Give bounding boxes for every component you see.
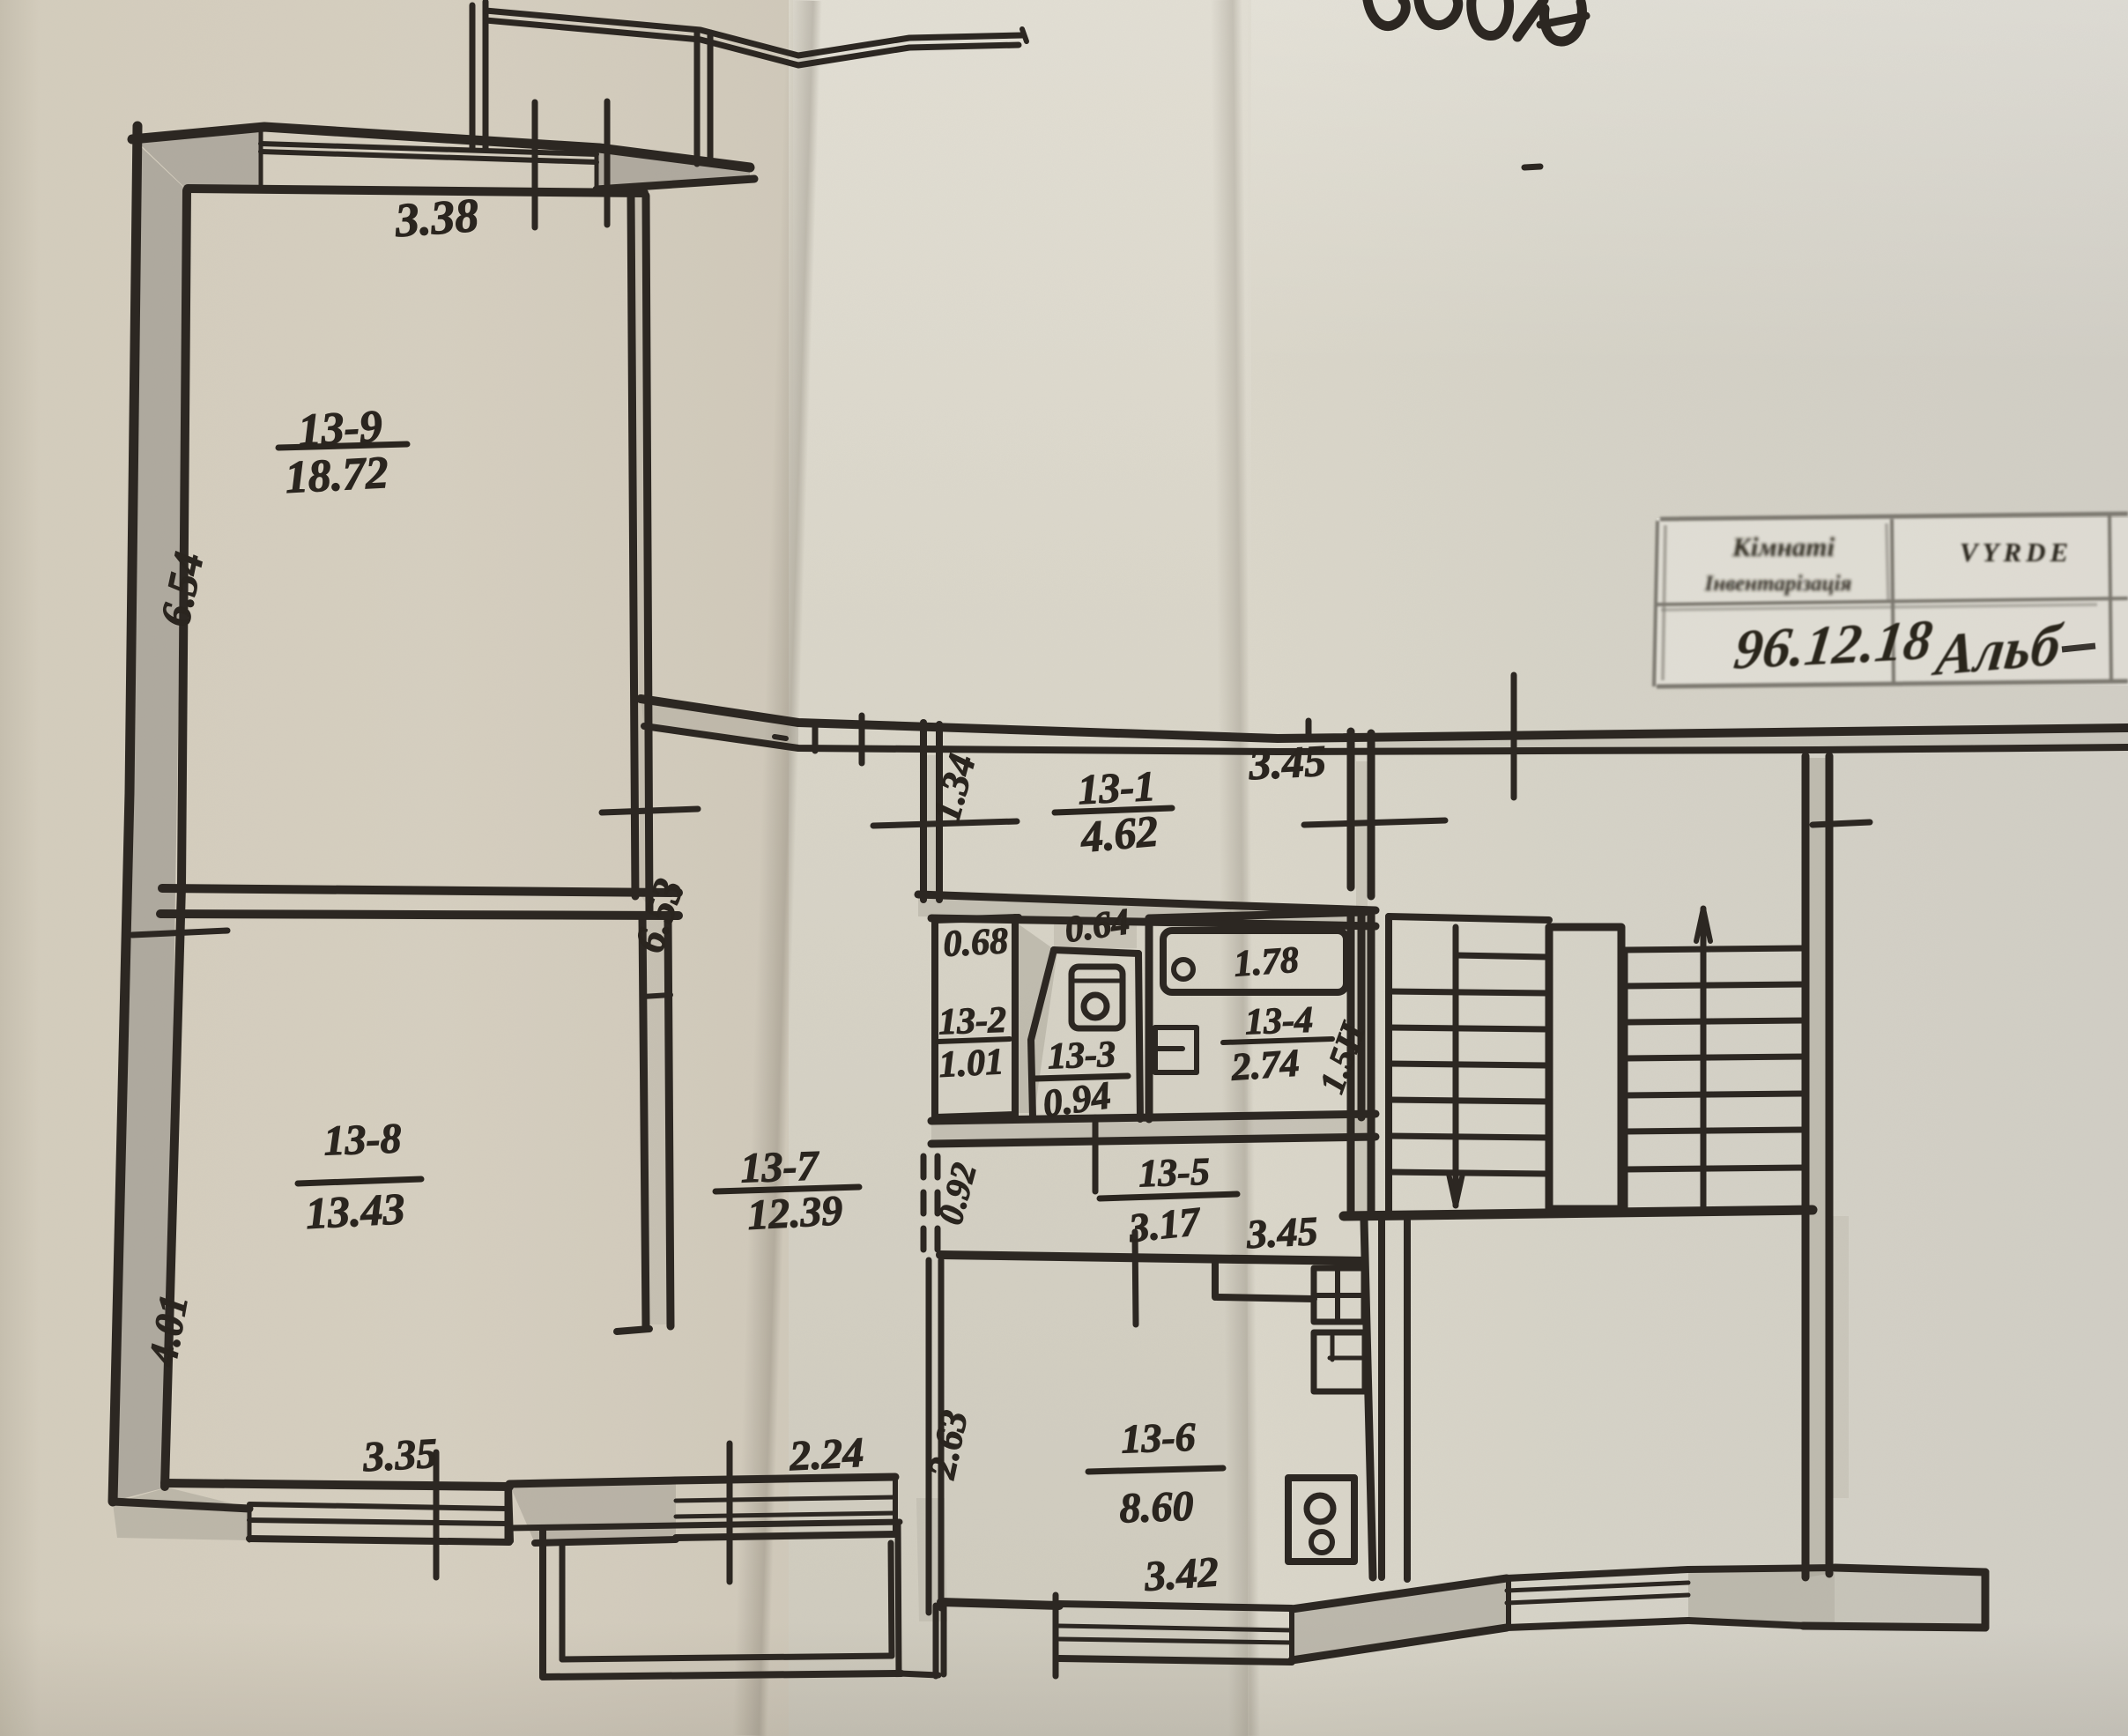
- svg-text:VYRDE: VYRDE: [1960, 537, 2072, 568]
- svg-text:Альб: Альб: [1929, 612, 2066, 688]
- svg-text:2.24: 2.24: [788, 1429, 865, 1480]
- svg-text:Кімнаті: Кімнаті: [1731, 531, 1835, 562]
- svg-text:13.43: 13.43: [304, 1183, 405, 1238]
- svg-text:2.74: 2.74: [1229, 1041, 1301, 1088]
- svg-text:8.60: 8.60: [1119, 1483, 1195, 1532]
- svg-text:3.42: 3.42: [1142, 1548, 1220, 1600]
- svg-text:13-6: 13-6: [1120, 1414, 1196, 1462]
- svg-text:Інвентарізація: Інвентарізація: [1704, 572, 1852, 596]
- svg-text:12.39: 12.39: [746, 1187, 844, 1239]
- svg-text:3.17: 3.17: [1126, 1198, 1204, 1250]
- svg-text:13-3: 13-3: [1047, 1035, 1116, 1078]
- svg-text:13-4: 13-4: [1244, 1000, 1314, 1043]
- svg-text:3.35: 3.35: [361, 1430, 439, 1480]
- svg-text:13-8: 13-8: [323, 1115, 403, 1164]
- svg-text:18.72: 18.72: [284, 448, 389, 503]
- svg-text:13-7: 13-7: [740, 1142, 821, 1191]
- svg-text:0.68: 0.68: [942, 921, 1009, 965]
- svg-text:3.38: 3.38: [393, 189, 480, 248]
- svg-text:1.78: 1.78: [1233, 940, 1301, 985]
- svg-text:96.12.18: 96.12.18: [1731, 608, 1935, 681]
- svg-text:13-2: 13-2: [938, 1000, 1007, 1043]
- svg-text:1.01: 1.01: [938, 1042, 1005, 1086]
- svg-text:3.45: 3.45: [1245, 1208, 1319, 1257]
- svg-text:3.45: 3.45: [1247, 736, 1327, 790]
- svg-text:13-5: 13-5: [1138, 1150, 1210, 1196]
